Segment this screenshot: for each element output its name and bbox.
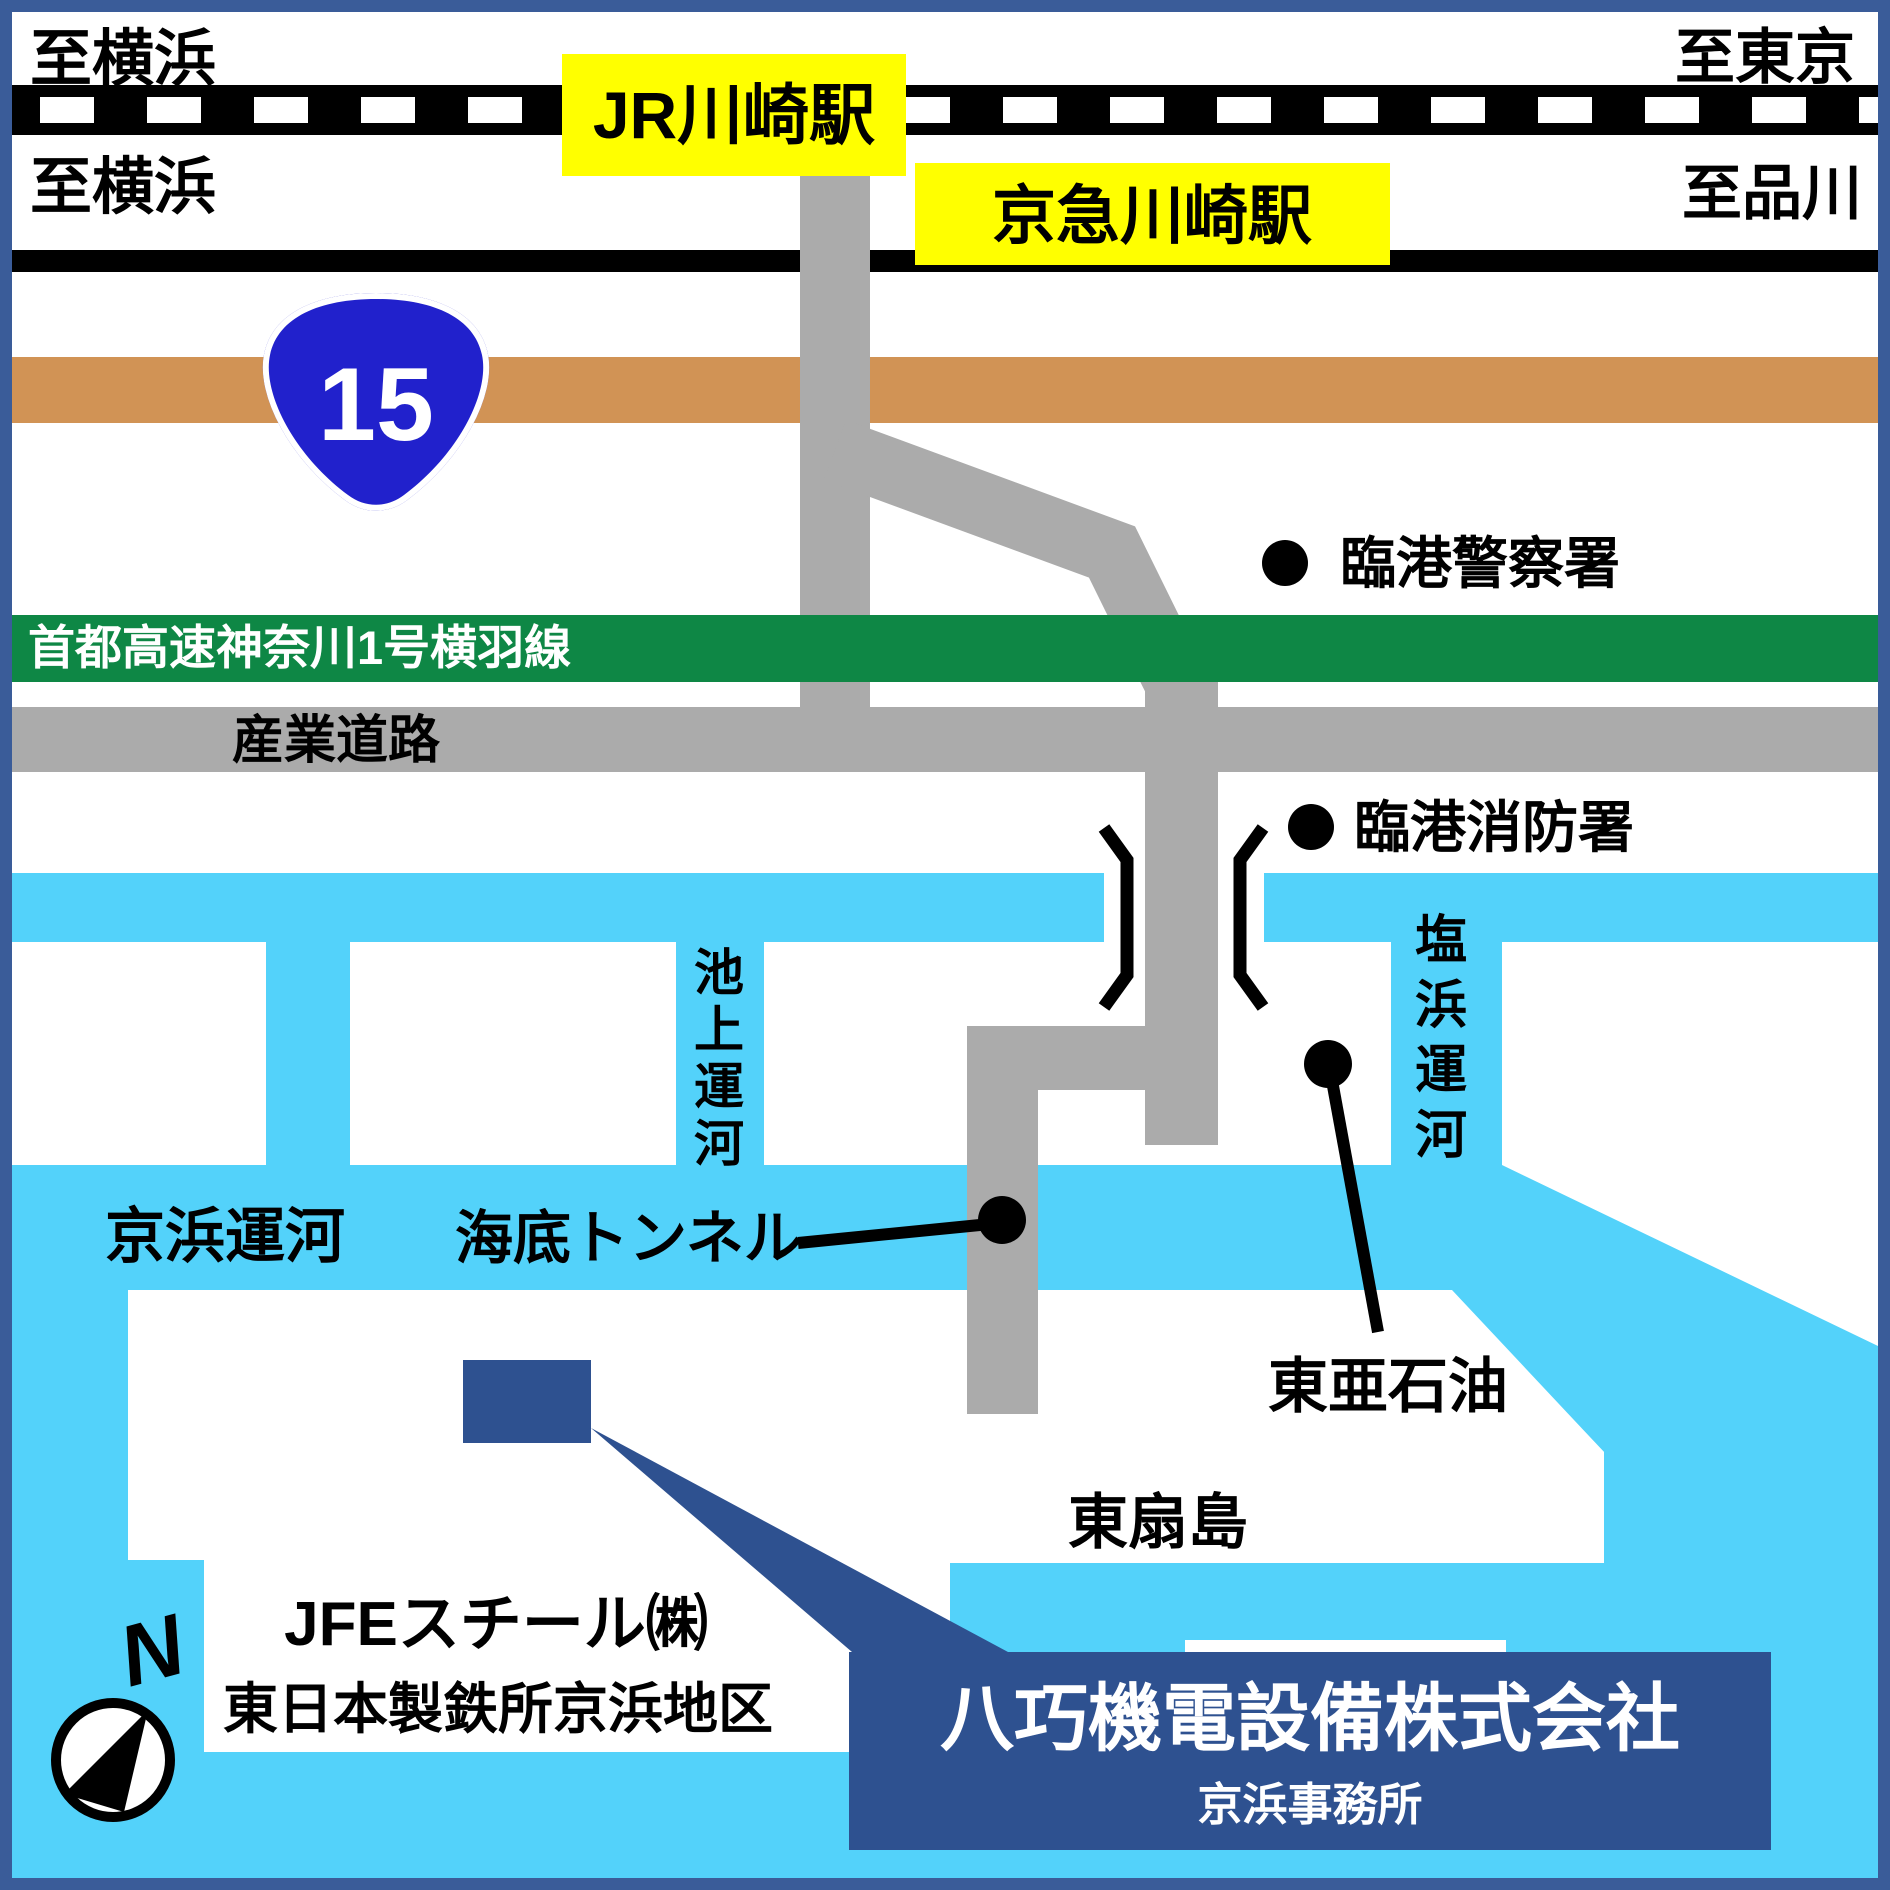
to-tokyo-label: 至東京 [1675,24,1855,91]
jr-station-label-text: JR川崎駅 [593,78,875,152]
company-name: 八巧機電設備株式会社 [940,1677,1680,1760]
shiohama-char-2: 浜 [1415,977,1467,1035]
police-dot-icon [1262,540,1308,586]
jfe-steel-line2: 東日本製鉄所京浜地区 [223,1678,773,1740]
company-location-marker [463,1360,591,1443]
expressway-label: 首都高速神奈川1号横羽線 [28,621,571,674]
access-map: 至横浜 至東京 JR川崎駅 至横浜 至品川 京急川崎駅 15 首都高速神奈川1号… [0,0,1890,1890]
keikyu-station-label-text: 京急川崎駅 [992,180,1312,252]
ikegami-char-4: 河 [694,1116,744,1172]
shiohama-char-4: 河 [1415,1107,1467,1165]
toa-oil-dot-icon [1304,1040,1352,1088]
company-box: 八巧機電設備株式会社 京浜事務所 [849,1652,1771,1850]
ikegami-char-1: 池 [694,945,744,1001]
company-office: 京浜事務所 [1197,1779,1422,1830]
toa-oil-label: 東亜石油 [1268,1353,1508,1420]
to-yokohama-keikyu-label: 至横浜 [30,153,216,222]
keikyu-station-label: 京急川崎駅 [915,163,1390,265]
shiohama-char-3: 運 [1415,1042,1467,1100]
fire-dot-icon [1288,804,1334,850]
route15-number: 15 [318,347,434,463]
ikegami-canal-label: 池 上 運 河 [694,945,744,1172]
fire-label: 臨港消防署 [1354,796,1634,859]
jr-line [12,85,1878,135]
sangyo-road-label: 産業道路 [232,712,441,770]
left-margin-water [12,1290,128,1570]
canal-strip-west [266,942,350,1168]
south-channel [1185,1563,1506,1640]
jr-station-label: JR川崎駅 [562,54,906,176]
jfe-steel-line1: JFEスチール㈱ [284,1590,708,1659]
shiohama-char-1: 塩 [1415,912,1467,970]
keihin-canal-label: 京浜運河 [105,1203,345,1270]
higashi-ogishima-label: 東扇島 [1068,1489,1248,1556]
to-yokohama-jr-label: 至横浜 [30,25,216,94]
undersea-tunnel-label: 海底トンネル [455,1206,802,1271]
to-shinagawa-label: 至品川 [1682,160,1862,227]
ikegami-char-3: 運 [694,1059,744,1115]
undersea-tunnel-dot-icon [978,1196,1026,1244]
ikegami-char-2: 上 [694,1002,744,1058]
upper-canal-east [1264,873,1878,942]
access-map-canvas: 至横浜 至東京 JR川崎駅 至横浜 至品川 京急川崎駅 15 首都高速神奈川1号… [0,0,1890,1890]
upper-canal-west [12,873,1104,942]
police-label: 臨港警察署 [1340,532,1620,595]
jr-line-dashes [12,97,1878,123]
